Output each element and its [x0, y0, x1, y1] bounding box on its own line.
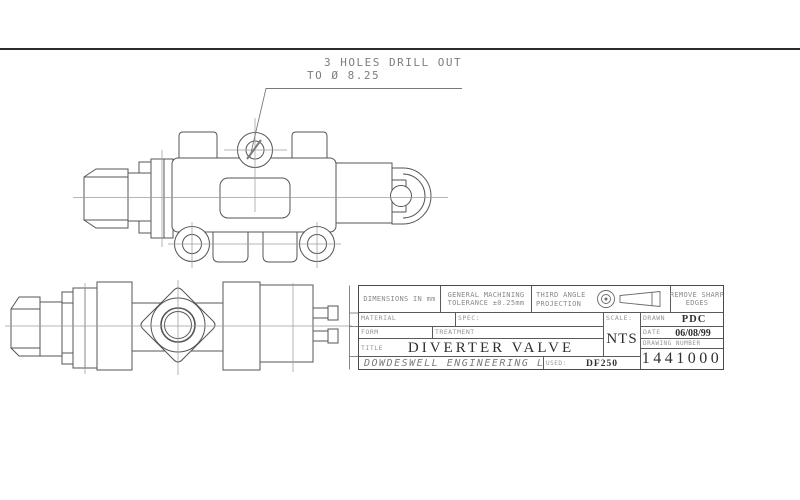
third-angle-projection-icon	[594, 289, 666, 309]
top-view	[84, 132, 431, 262]
dimensions-note-cell: DIMENSIONS IN mm	[358, 285, 441, 313]
date-label: DATE	[643, 328, 661, 336]
front-view-solenoid-housing	[260, 285, 313, 362]
drawing-linework	[0, 0, 800, 500]
form-label: FORM	[361, 328, 379, 336]
front-view-pin1-stem	[313, 308, 328, 318]
drawn-label: DRAWN	[643, 314, 665, 322]
company-cell: DOWDESWELL ENGINEERING LTD	[358, 356, 544, 370]
title-value: DIVERTER VALVE	[379, 340, 603, 357]
remove-sharp-edges-cell: REMOVE SHARP EDGES	[670, 285, 724, 313]
top-view-bottom-pad-left	[213, 230, 248, 262]
material-label: MATERIAL	[361, 314, 396, 322]
drawing-number-value-cell: 1441000	[640, 348, 724, 370]
top-view-bottom-pad-right	[263, 230, 297, 262]
drawing-number-label: DRAWING NUMBER	[643, 340, 701, 347]
edges-note-line2: EDGES	[670, 299, 724, 308]
front-view-hex-plug	[11, 297, 40, 356]
top-view-hex-plug	[84, 169, 128, 228]
drawn-value: PDC	[665, 314, 723, 325]
used-value: DF250	[564, 359, 640, 369]
front-view-pin2-stem	[313, 331, 328, 341]
scale-value: NTS	[604, 331, 640, 348]
tolerance-note-cell: GENERAL MACHINING TOLERANCE ±0.25mm	[440, 285, 532, 313]
dimensions-note: DIMENSIONS IN mm	[363, 295, 435, 304]
spec-label: SPEC:	[458, 314, 480, 322]
drawing-number-value: 1441000	[642, 350, 723, 368]
hole-note-line2: TO Ø 8.25	[307, 69, 380, 82]
spec-cell: SPEC:	[455, 312, 604, 327]
date-value: 06/08/99	[663, 328, 723, 339]
title-block: DIMENSIONS IN mm GENERAL MACHINING TOLER…	[358, 285, 724, 370]
projection-line2: PROJECTION	[536, 300, 586, 309]
tolerance-note-line2: TOLERANCE ±0.25mm	[448, 299, 525, 308]
hole-note-line1: 3 HOLES DRILL OUT	[324, 56, 462, 69]
title-cell: TITLE DIVERTER VALVE	[358, 338, 604, 357]
top-view-extension-block	[336, 163, 392, 223]
treatment-label: TREATMENT	[435, 328, 475, 336]
top-view-clevis-hole	[391, 186, 412, 207]
scale-cell: SCALE: NTS	[603, 312, 641, 357]
top-view-neck	[128, 173, 151, 221]
edges-note-line1: REMOVE SHARP	[670, 291, 724, 300]
front-view-pin1-cap	[328, 306, 338, 320]
used-on-cell: USED: DF250	[543, 356, 641, 370]
hole-note-leader	[247, 89, 462, 160]
front-view-tab-top	[62, 292, 73, 303]
tolerance-note-line1: GENERAL MACHINING	[448, 291, 525, 300]
front-view-neck	[40, 302, 62, 356]
top-view-main-body	[172, 158, 336, 232]
scale-label: SCALE:	[606, 314, 632, 322]
material-cell: MATERIAL	[358, 312, 456, 327]
title-block-left-rule	[350, 286, 359, 370]
company-name: DOWDESWELL ENGINEERING LTD	[364, 358, 560, 369]
front-view-tab-bottom	[62, 353, 73, 364]
drawn-cell: DRAWN PDC	[640, 312, 724, 327]
front-view-pin2-cap	[328, 329, 338, 343]
projection-cell: THIRD ANGLE PROJECTION	[531, 285, 671, 313]
drawing-sheet: 3 HOLES DRILL OUT TO Ø 8.25 DIMENSIONS I…	[0, 0, 800, 500]
projection-line1: THIRD ANGLE	[536, 291, 586, 300]
